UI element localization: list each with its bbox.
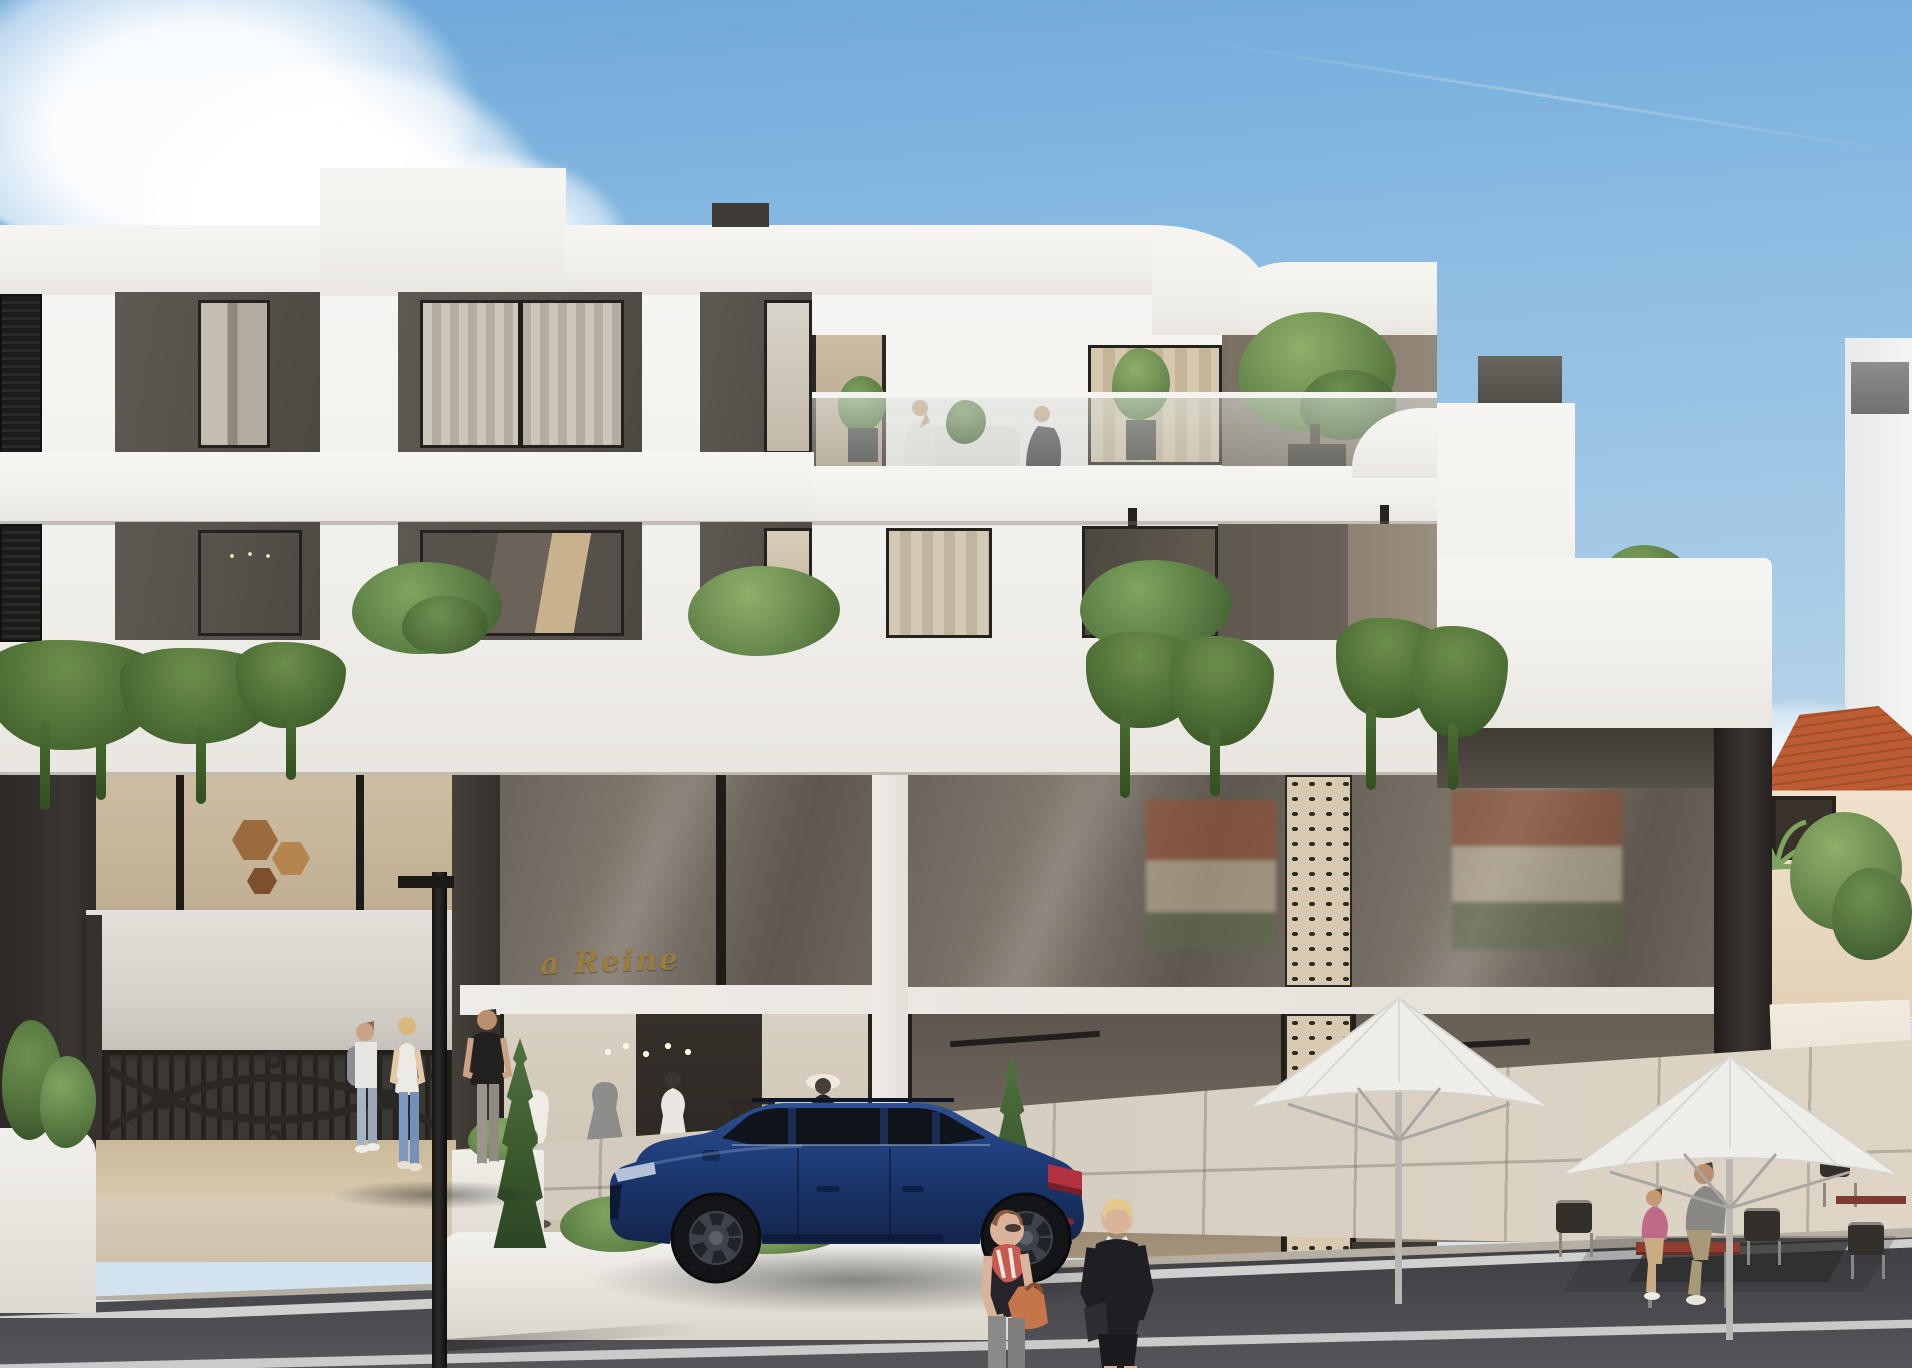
ivy-strand (1210, 726, 1220, 796)
storefront-mullion (716, 775, 726, 987)
glass-reflection-redroof (1452, 790, 1622, 950)
ivy-strand (96, 728, 106, 800)
window-mullion (518, 300, 523, 448)
lobby-mullion (356, 775, 364, 915)
boutique-chandelier (594, 1022, 714, 1068)
pedestrians-at-gate (335, 1008, 525, 1208)
ivy-strand (196, 724, 206, 804)
two-women-talking (980, 1190, 1180, 1368)
cafe-umbrella (1240, 990, 1558, 1315)
parapet-raised-block (320, 168, 566, 296)
window-lit (764, 300, 812, 454)
left-planter-wall (0, 1128, 96, 1313)
slab-band-right (812, 466, 1437, 526)
kitchen-pendant-lights (224, 548, 276, 558)
window-curtains (886, 528, 992, 638)
lobby-mullion (176, 775, 184, 915)
window-kitchen (198, 530, 302, 636)
facade-panel (1218, 524, 1348, 640)
glass-reflection-redroof (1146, 800, 1276, 950)
ivy-strand (1366, 706, 1376, 790)
ivy-strand (40, 720, 50, 810)
lobby-glass (96, 775, 460, 915)
rooftop-box (712, 203, 769, 227)
perforated-screen-upper (1285, 775, 1352, 987)
street-architectural-render: a Reine (0, 0, 1912, 1368)
wing-rooftop-vent (1478, 356, 1562, 408)
storefront-white-strip (460, 985, 1772, 1015)
terrace-glass-balustrade (812, 392, 1437, 470)
parapet-left (0, 225, 322, 295)
lamp-post (432, 872, 447, 1368)
lamp-post-crossbar (398, 876, 454, 888)
window-shutter (0, 524, 42, 642)
background-building-window-band (1851, 362, 1909, 414)
ivy-strand (1120, 712, 1130, 798)
boutique-sign: a Reine (539, 941, 710, 982)
cafe-umbrella (1552, 1048, 1908, 1348)
ivy-strand (286, 716, 296, 780)
window (198, 300, 270, 448)
parapet-middle (564, 225, 1156, 295)
ivy-strand (1448, 724, 1458, 790)
window-shutter (0, 294, 42, 456)
slab-band (0, 452, 814, 525)
